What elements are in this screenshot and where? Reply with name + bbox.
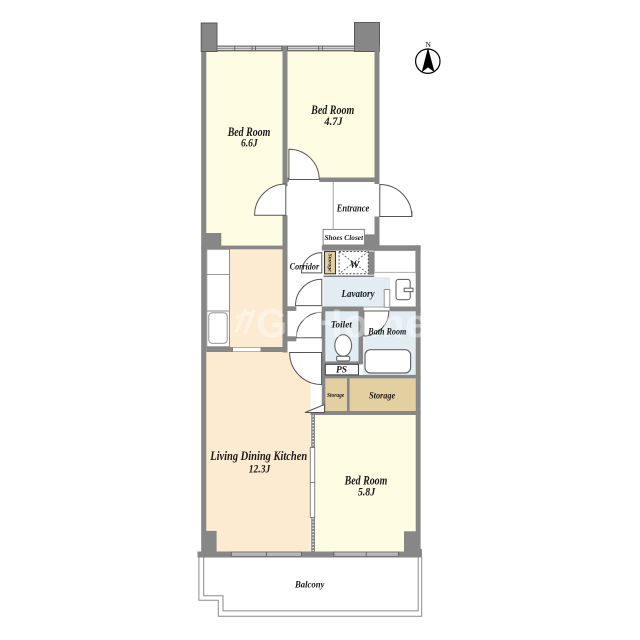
svg-text:N: N bbox=[425, 40, 431, 49]
svg-text:5.8J: 5.8J bbox=[358, 484, 376, 498]
svg-text:W: W bbox=[350, 259, 361, 271]
svg-text:4.7J: 4.7J bbox=[324, 114, 344, 128]
svg-text:Storage: Storage bbox=[327, 393, 344, 399]
svg-text:Toilet: Toilet bbox=[331, 319, 353, 329]
svg-text:Shoes Closet: Shoes Closet bbox=[324, 233, 364, 242]
svg-text:6.6J: 6.6J bbox=[241, 136, 258, 150]
svg-text:PS: PS bbox=[336, 366, 347, 376]
svg-text:12.3J: 12.3J bbox=[249, 461, 271, 475]
svg-text:Lavatory: Lavatory bbox=[341, 289, 375, 300]
svg-text:Balcony: Balcony bbox=[294, 579, 325, 589]
svg-text:Bath Room: Bath Room bbox=[367, 327, 406, 337]
svg-text:Storage: Storage bbox=[369, 390, 395, 400]
svg-text:Entrance: Entrance bbox=[336, 204, 370, 215]
svg-text:Corridor: Corridor bbox=[290, 262, 320, 272]
svg-text:Storage: Storage bbox=[327, 254, 333, 273]
